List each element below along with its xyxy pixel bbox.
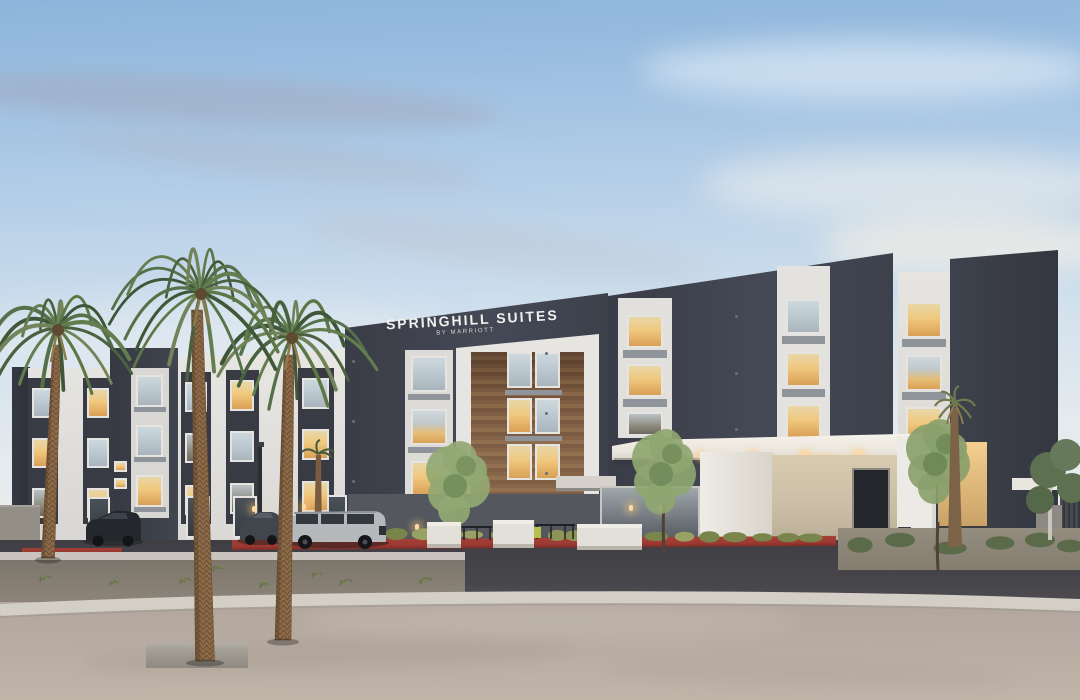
hotel-window	[906, 355, 942, 391]
hotel-window	[32, 388, 54, 418]
hotel-window	[302, 481, 329, 512]
window-sill	[533, 436, 562, 441]
hotel-window	[186, 496, 210, 538]
facade-dot	[735, 372, 738, 375]
facade-dot	[545, 352, 548, 355]
hotel-exterior-photo: SPRINGHILL SUITES BY MARRIOTT	[0, 0, 1080, 700]
wall-sconce-light	[302, 504, 306, 510]
wall-sconce-light	[366, 523, 370, 529]
hotel-window	[411, 409, 447, 445]
hotel-window	[185, 433, 207, 463]
palm-planter	[146, 642, 248, 668]
hotel-window	[114, 461, 127, 472]
window-sill	[623, 350, 667, 358]
wall-sconce-light	[629, 505, 633, 511]
facade-dot	[735, 428, 738, 431]
window-sill	[782, 336, 825, 344]
facade-dot	[735, 315, 738, 318]
window-sill	[782, 389, 825, 397]
hotel-window	[87, 438, 109, 468]
window-sill	[134, 457, 166, 462]
hotel-window	[136, 375, 163, 407]
hotel-window	[32, 438, 54, 468]
hotel-window	[786, 404, 821, 439]
pavement-streak	[300, 600, 800, 640]
hotel-window	[230, 431, 254, 462]
downlight	[650, 455, 655, 459]
hotel-window	[302, 429, 329, 460]
hotel-window	[627, 315, 663, 348]
hotel-window	[627, 364, 663, 397]
hotel-window	[786, 352, 821, 387]
window-sill	[623, 399, 667, 407]
hotel-window	[114, 478, 127, 489]
window-sill	[902, 392, 946, 400]
gravel-strip-left	[0, 560, 465, 604]
hotel-window	[786, 299, 821, 334]
hotel-window	[535, 398, 560, 434]
hotel-window	[535, 352, 560, 388]
wall-sconce-light	[252, 506, 256, 512]
hotel-window	[507, 352, 532, 388]
corner-glass-lit	[936, 440, 989, 528]
window-sill	[505, 436, 534, 441]
gravel-strip-right	[838, 528, 1080, 570]
hotel-window	[507, 398, 532, 434]
hotel-window	[230, 380, 254, 411]
hotel-window	[411, 356, 447, 392]
hotel-window	[906, 302, 942, 338]
hotel-window	[88, 497, 110, 537]
window-sill	[533, 390, 562, 395]
window-sill	[505, 390, 534, 395]
hotel-window	[136, 475, 163, 507]
facade-dot	[545, 472, 548, 475]
facade-dot	[545, 412, 548, 415]
hotel-window	[327, 495, 347, 538]
cloud	[640, 40, 1080, 100]
window-sill	[408, 447, 450, 453]
window-sill	[408, 394, 450, 400]
facade-dot	[352, 480, 355, 483]
background-canopy-right	[1012, 478, 1080, 490]
wall-sconce-light	[659, 505, 663, 511]
hotel-window	[411, 461, 447, 497]
hotel-window	[302, 378, 329, 409]
hotel-window	[507, 444, 532, 480]
facade-dot	[352, 360, 355, 363]
hotel-window	[185, 382, 207, 412]
hotel-window	[87, 388, 109, 418]
window-sill	[902, 339, 946, 347]
facade-dot	[352, 420, 355, 423]
hotel-window	[136, 425, 163, 457]
window-sill	[134, 507, 166, 512]
hotel-window	[233, 496, 257, 538]
wall-sconce-light	[415, 524, 419, 530]
window-sill	[134, 407, 166, 412]
hotel-window	[627, 412, 663, 436]
